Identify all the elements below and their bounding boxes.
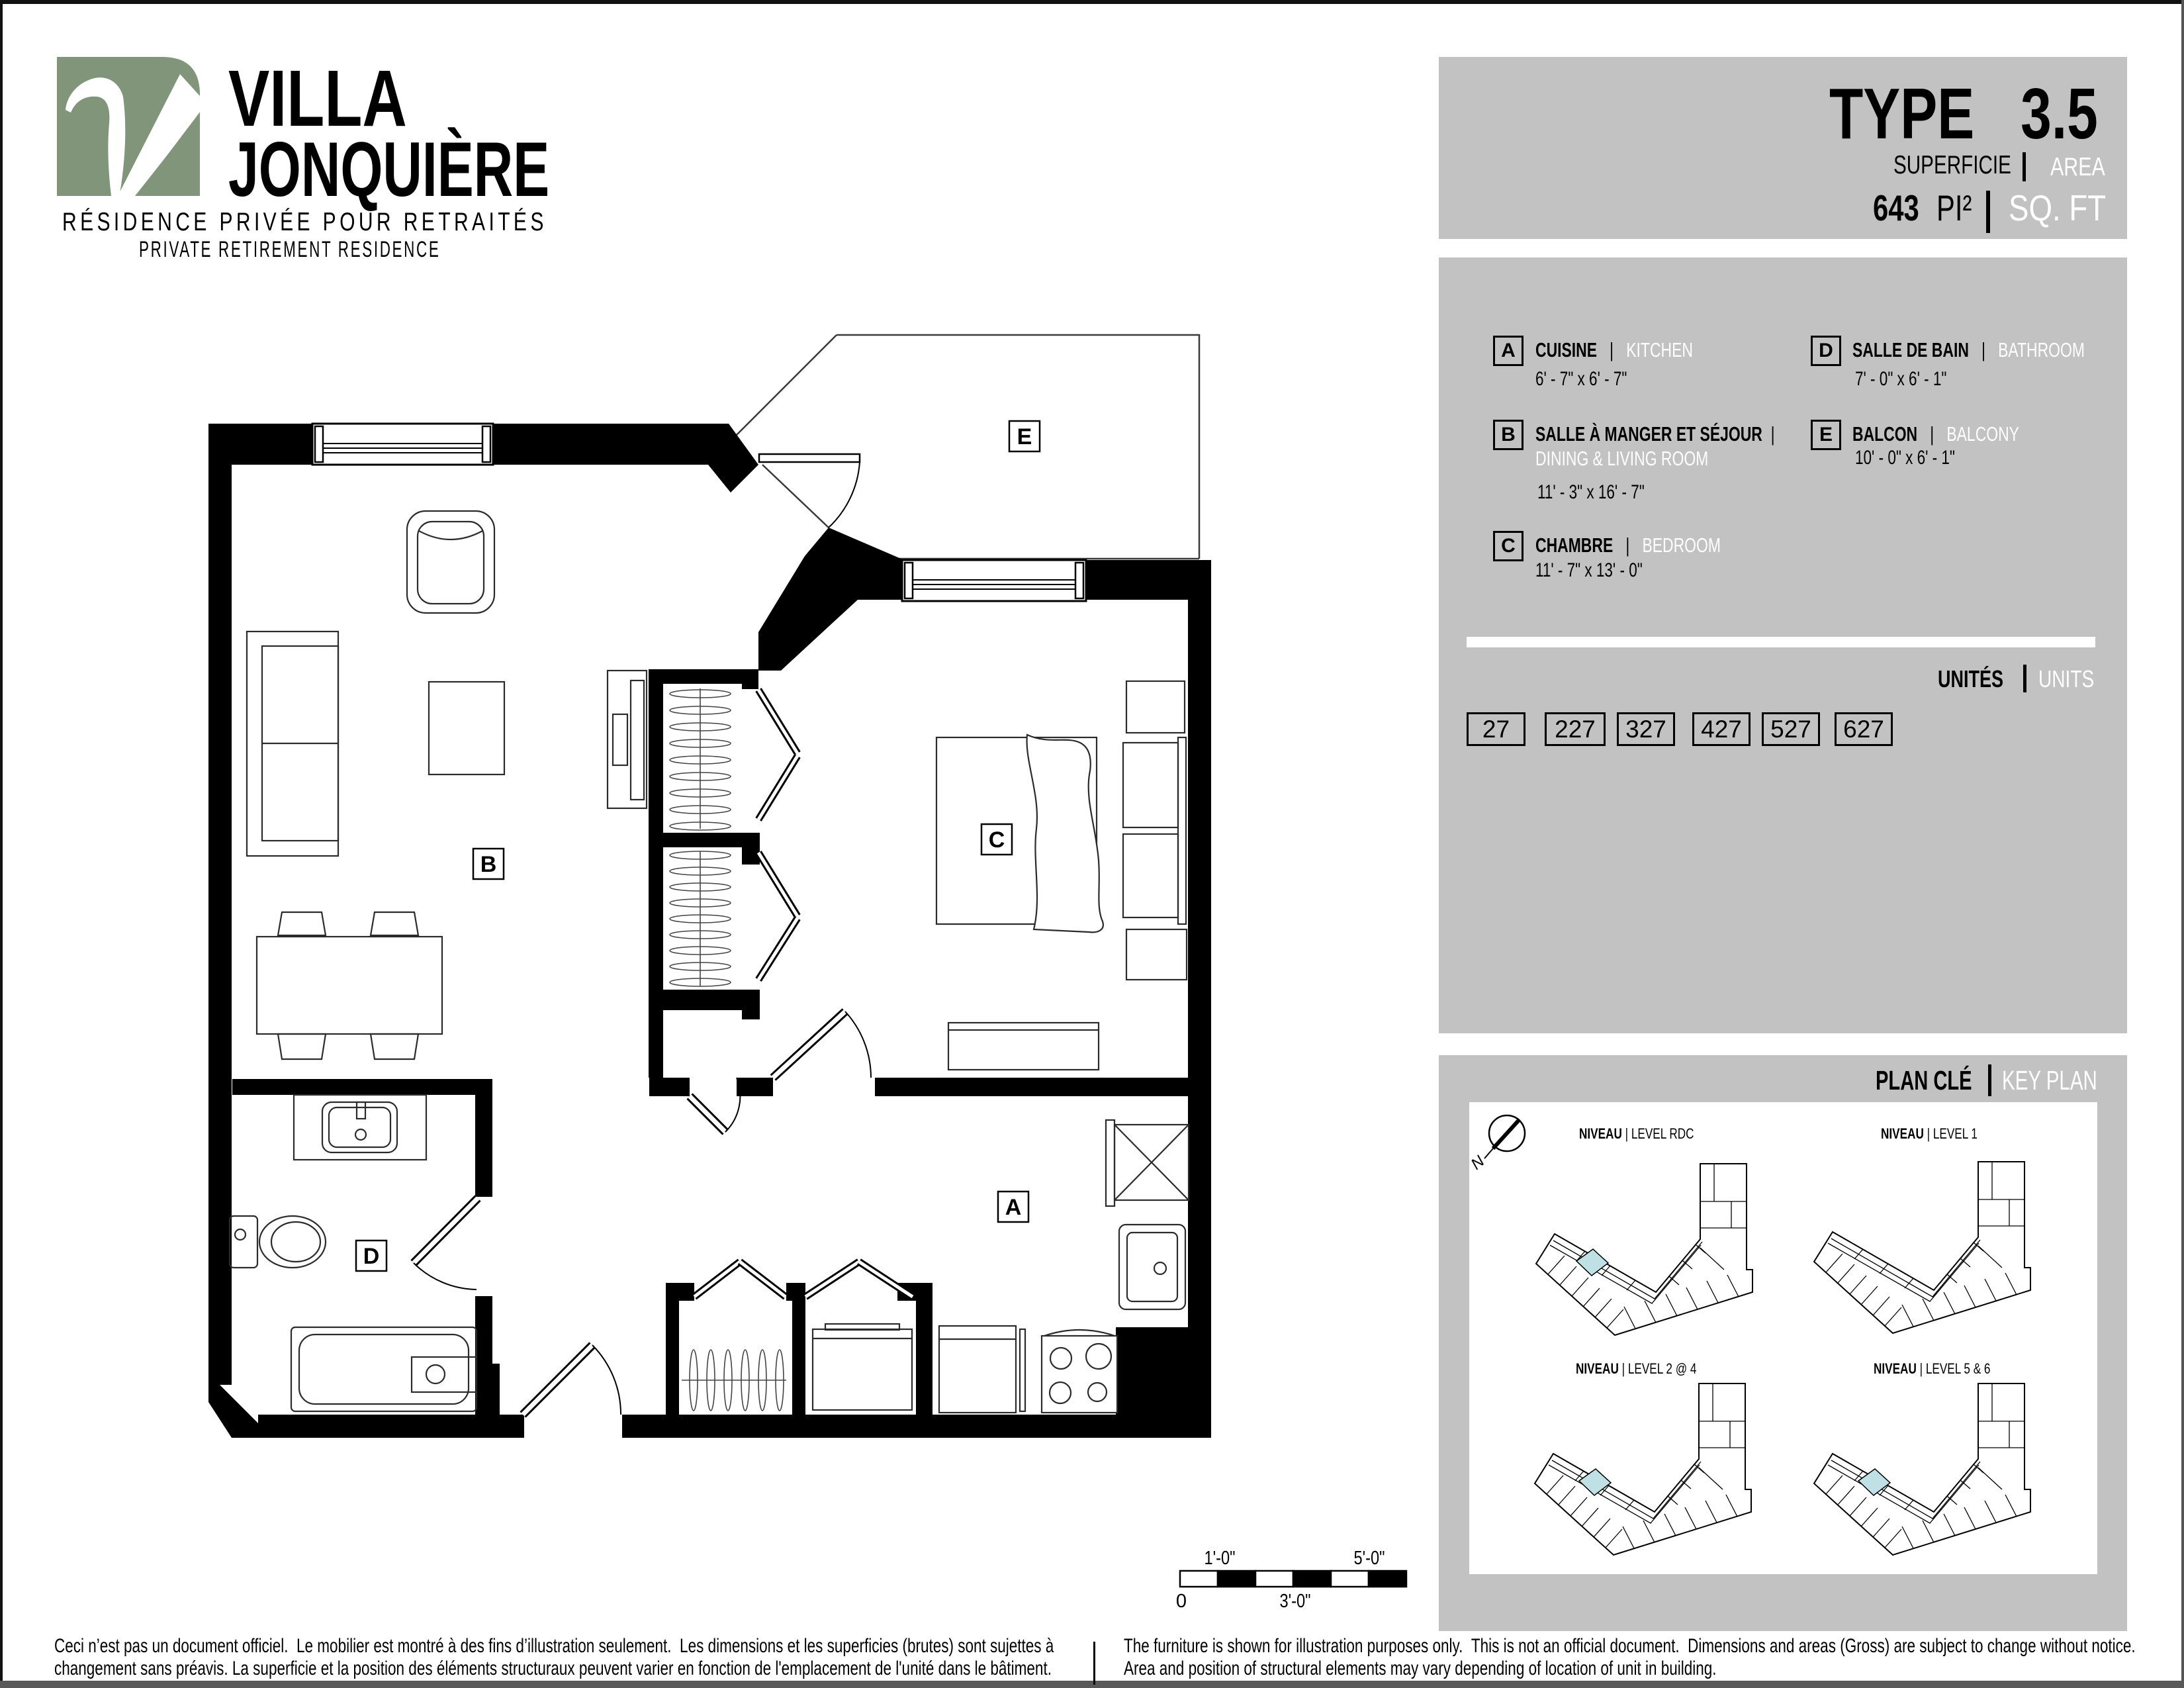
svg-text:3'-0": 3'-0": [1280, 1591, 1311, 1612]
svg-text:0: 0: [1176, 1591, 1187, 1612]
svg-text:N: N: [1468, 1152, 1488, 1173]
svg-text:E: E: [1017, 424, 1032, 449]
svg-text:A: A: [1005, 1195, 1022, 1220]
svg-text:D: D: [363, 1244, 380, 1269]
svg-text:C: C: [989, 827, 1005, 853]
svg-text:1'-0": 1'-0": [1205, 1548, 1236, 1569]
svg-text:5'-0": 5'-0": [1354, 1548, 1385, 1569]
svg-text:B: B: [480, 852, 497, 877]
